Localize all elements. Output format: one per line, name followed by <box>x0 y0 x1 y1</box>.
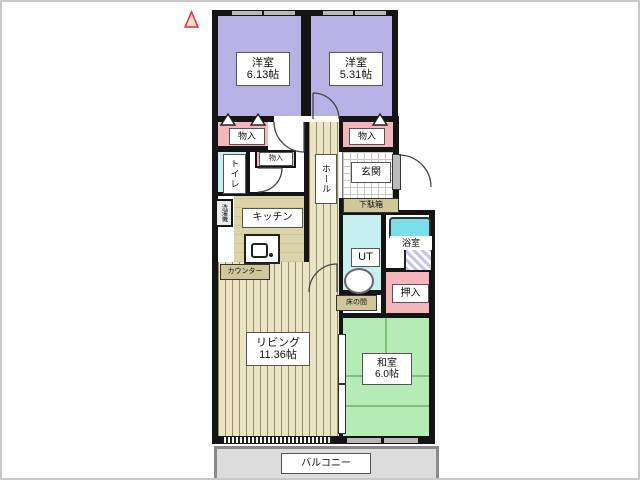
kitchen-label: キッチン <box>242 208 303 228</box>
genkan-label: 玄関 <box>351 162 391 183</box>
closet-left-label: 物入 <box>229 128 265 145</box>
sliding-door-washitsu-2 <box>338 384 346 434</box>
ut-label: UT <box>351 248 380 267</box>
wall-under-bedroom2 <box>339 116 398 122</box>
wall-closet-right-bottom <box>343 147 393 152</box>
wall-genkan-right-upper <box>393 116 399 154</box>
genkan-step-line <box>342 152 343 198</box>
hall-label: ホール <box>315 154 337 204</box>
door-arc-toilet <box>258 168 282 192</box>
door-arc-bedroom1 <box>274 122 304 152</box>
washitsu-label: 和室 6.0帖 <box>362 353 412 385</box>
wall-left <box>212 10 218 444</box>
sink-bowl-icon <box>251 243 268 258</box>
tokonoma-label: 床の間 <box>336 295 377 311</box>
laundry-space: 洗濯機 <box>215 199 233 227</box>
washbasin-icon <box>344 268 374 294</box>
closet-small-label: 物入 <box>259 152 293 166</box>
sliding-door-washitsu-1 <box>338 334 346 384</box>
closet-right-label: 物入 <box>349 128 385 145</box>
entrance-door-leaf <box>392 154 401 190</box>
window-washitsu-2 <box>384 438 418 443</box>
window-mullion <box>262 11 264 15</box>
window-washitsu-1 <box>347 438 381 443</box>
wall-under-bedroom1 <box>218 116 274 122</box>
wall-ut-bath-divider <box>381 210 386 318</box>
door-arc-entrance <box>399 155 431 187</box>
kitchen-sink-icon <box>244 234 280 264</box>
wall-toilet-right <box>246 152 250 196</box>
wall-bedroom-divider <box>301 16 311 116</box>
getabako-label: 下駄箱 <box>343 198 399 213</box>
laundry-label: 洗濯機 <box>220 204 229 222</box>
floor-plan: 洗濯機 洋室 6.13帖 洋室 5.31帖 物入 物入 物入 トイレ ホール 玄… <box>0 0 640 480</box>
wall-washitsu-top <box>339 313 435 318</box>
bedroom2-label: 洋室 5.31帖 <box>329 52 383 86</box>
counter-label: カウンター <box>220 264 270 280</box>
toilet-label: トイレ <box>223 154 246 194</box>
north-arrow-icon <box>185 12 198 27</box>
wall-right-upper <box>392 10 398 122</box>
living-label: リビング 11.36帖 <box>246 332 310 366</box>
oshiire-label: 押入 <box>392 284 429 303</box>
balcony-label: バルコニー <box>281 453 371 474</box>
window-mullion <box>353 11 355 15</box>
tatami-line <box>343 405 429 407</box>
bedroom1-label: 洋室 6.13帖 <box>236 52 290 86</box>
window-living-hatch <box>224 437 332 443</box>
sink-faucet-icon <box>269 253 273 257</box>
bath-label: 浴室 <box>390 236 432 250</box>
